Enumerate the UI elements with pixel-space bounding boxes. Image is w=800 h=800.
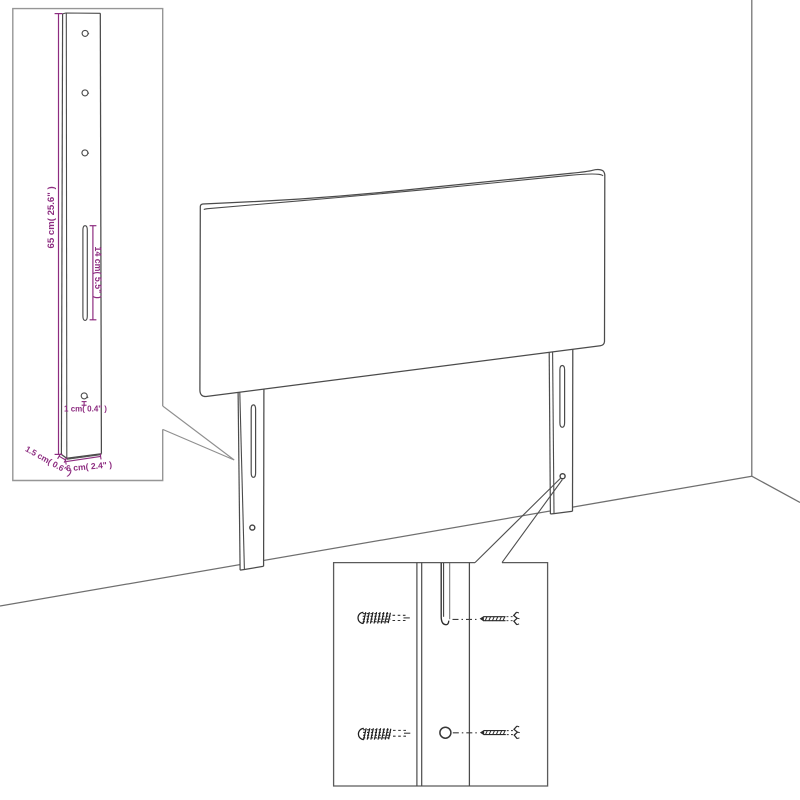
svg-text:65 cm( 25.6" ): 65 cm( 25.6" ) xyxy=(46,186,57,248)
svg-text:1 cm( 0.4" ): 1 cm( 0.4" ) xyxy=(64,405,107,414)
svg-text:14 cm( 5.5" ): 14 cm( 5.5" ) xyxy=(93,247,103,299)
